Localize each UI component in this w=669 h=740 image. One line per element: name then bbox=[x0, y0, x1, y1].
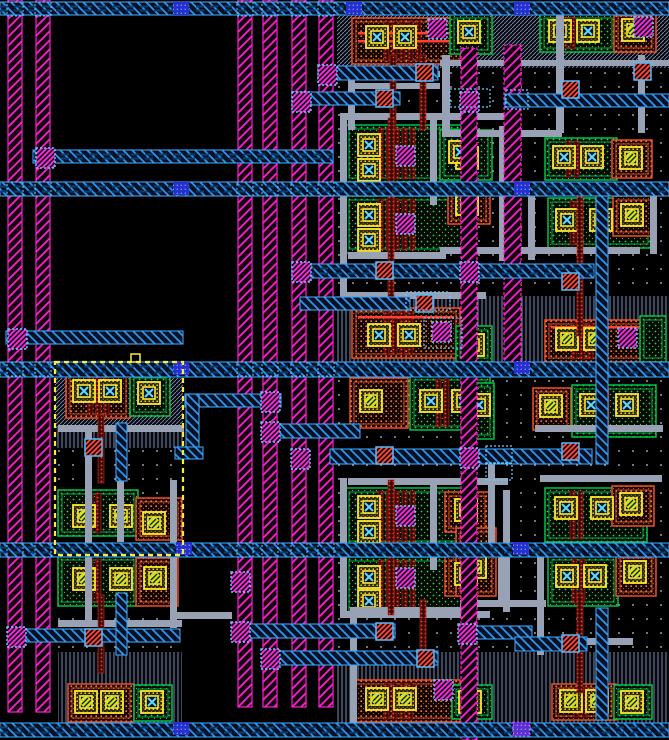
via-contact bbox=[376, 447, 393, 464]
contact-cross bbox=[394, 26, 416, 48]
gray-rail bbox=[348, 478, 508, 485]
via-metal2 bbox=[460, 92, 479, 112]
via-contact bbox=[562, 81, 579, 98]
via-contact bbox=[417, 650, 434, 667]
contact-circle bbox=[624, 561, 646, 583]
via-metal2 bbox=[8, 329, 27, 349]
contact-cross bbox=[358, 229, 380, 251]
contact-circle bbox=[394, 688, 416, 710]
metal2-stripe bbox=[263, 0, 277, 707]
contact-circle bbox=[143, 512, 165, 534]
metal1-rail bbox=[596, 196, 608, 464]
contact-cross bbox=[555, 497, 577, 519]
via-contact bbox=[562, 443, 579, 460]
contact-circle bbox=[75, 691, 97, 713]
via-metal2 bbox=[261, 649, 280, 669]
metal1-rail bbox=[596, 608, 608, 720]
gray-rail bbox=[528, 196, 535, 260]
contact-circle bbox=[144, 567, 166, 589]
via-blue bbox=[173, 722, 189, 735]
ndiff-cell bbox=[640, 316, 666, 362]
contact-cross bbox=[581, 146, 603, 168]
contact-circle bbox=[620, 493, 642, 515]
via-metal2 bbox=[432, 322, 451, 342]
gray-rail bbox=[85, 431, 92, 627]
via-metal2 bbox=[458, 624, 477, 644]
via-metal2 bbox=[261, 392, 280, 412]
via-blue bbox=[173, 182, 189, 195]
via-blue bbox=[514, 182, 530, 195]
metal2-stripe bbox=[504, 45, 521, 363]
metal1-rail bbox=[0, 723, 669, 737]
contact-circle bbox=[101, 691, 123, 713]
via-metal2 bbox=[634, 17, 653, 37]
gray-rail bbox=[350, 607, 462, 614]
via-metal2 bbox=[460, 448, 479, 468]
contact-cross bbox=[138, 382, 160, 404]
metal1-rail bbox=[0, 543, 669, 557]
contact-cross bbox=[556, 209, 578, 231]
contact-cross bbox=[73, 380, 95, 402]
contact-cross bbox=[616, 394, 638, 416]
via-blue bbox=[513, 542, 529, 555]
metal1-rail bbox=[505, 94, 669, 107]
metal1-rail bbox=[292, 264, 594, 278]
via-purple bbox=[513, 722, 530, 736]
via-contact bbox=[562, 273, 579, 290]
contact-cross bbox=[358, 204, 380, 226]
metal2-stripe bbox=[8, 0, 22, 712]
contact-circle bbox=[366, 688, 388, 710]
via-blue bbox=[514, 361, 530, 374]
contact-cross bbox=[577, 20, 599, 42]
via-contact bbox=[376, 90, 393, 107]
via-metal2 bbox=[460, 262, 479, 282]
contact-cross bbox=[553, 146, 575, 168]
contact-cross bbox=[99, 380, 121, 402]
contact-circle bbox=[540, 395, 562, 417]
via-metal2 bbox=[7, 627, 26, 647]
contact-cross bbox=[398, 324, 420, 346]
contact-cross bbox=[420, 390, 442, 412]
via-contact bbox=[416, 64, 433, 81]
contact-cross bbox=[366, 26, 388, 48]
via-metal2 bbox=[36, 148, 55, 168]
contact-cross bbox=[368, 324, 390, 346]
contact-cross bbox=[358, 496, 380, 518]
layout-canvas[interactable] bbox=[0, 0, 669, 740]
via-contact bbox=[634, 63, 651, 80]
via-metal2 bbox=[618, 328, 637, 348]
contact-circle bbox=[621, 691, 643, 713]
via-contact bbox=[562, 635, 579, 652]
gray-rail bbox=[442, 55, 450, 135]
contact-circle bbox=[620, 147, 642, 169]
gray-rail bbox=[556, 13, 564, 133]
metal1-rail bbox=[175, 447, 203, 459]
via-metal2 bbox=[292, 262, 311, 282]
metal1-rail bbox=[33, 150, 333, 163]
via-contact bbox=[376, 623, 393, 640]
contact-cross bbox=[141, 691, 163, 713]
metal2-stripe bbox=[36, 0, 50, 712]
via-metal2 bbox=[396, 146, 415, 166]
via-metal2 bbox=[261, 422, 280, 442]
via-blue bbox=[173, 362, 189, 375]
contact-cross bbox=[458, 21, 480, 43]
contact-cross bbox=[358, 159, 380, 181]
via-metal2 bbox=[231, 622, 250, 642]
metal1-rail bbox=[262, 651, 438, 665]
via-blue bbox=[346, 2, 362, 15]
via-metal2 bbox=[292, 92, 311, 112]
metal2-stripe bbox=[238, 0, 252, 707]
contact-circle bbox=[110, 568, 132, 590]
gray-rail bbox=[498, 555, 505, 607]
via-metal2 bbox=[428, 19, 447, 39]
metal1-rail bbox=[0, 182, 669, 196]
contact-cross bbox=[358, 134, 380, 156]
metal2-stripe bbox=[319, 0, 333, 707]
via-metal2 bbox=[318, 65, 337, 85]
via-contact bbox=[85, 629, 102, 646]
metal1-rail bbox=[232, 624, 395, 638]
contact-cross bbox=[584, 565, 606, 587]
gray-rail bbox=[540, 475, 662, 482]
gray-rail bbox=[442, 130, 562, 137]
contact-circle bbox=[621, 204, 643, 226]
metal1-rail bbox=[6, 331, 183, 344]
via-contact bbox=[376, 262, 393, 279]
via-blue bbox=[514, 2, 530, 15]
metal1-rail bbox=[116, 423, 127, 481]
via-metal2 bbox=[396, 506, 415, 526]
gray-rail bbox=[488, 455, 495, 543]
via-metal2 bbox=[396, 214, 415, 234]
metal1-rail bbox=[116, 593, 127, 655]
via-contact bbox=[85, 439, 102, 456]
metal1-rail bbox=[300, 297, 410, 310]
layout-viewer bbox=[0, 0, 669, 740]
gray-rail bbox=[172, 612, 232, 619]
contact-cross bbox=[358, 521, 380, 543]
via-blue bbox=[173, 2, 189, 15]
via-metal2 bbox=[434, 680, 453, 700]
via-metal2 bbox=[291, 449, 310, 469]
contact-cross bbox=[556, 565, 578, 587]
contact-circle bbox=[556, 328, 578, 350]
contact-circle bbox=[360, 390, 382, 412]
via-metal2 bbox=[396, 568, 415, 588]
gray-rail bbox=[650, 196, 657, 254]
contact-cross bbox=[358, 566, 380, 588]
contact-cross bbox=[591, 497, 613, 519]
gray-rail bbox=[348, 252, 446, 259]
poly-line bbox=[420, 600, 426, 655]
via-metal2 bbox=[231, 572, 250, 592]
